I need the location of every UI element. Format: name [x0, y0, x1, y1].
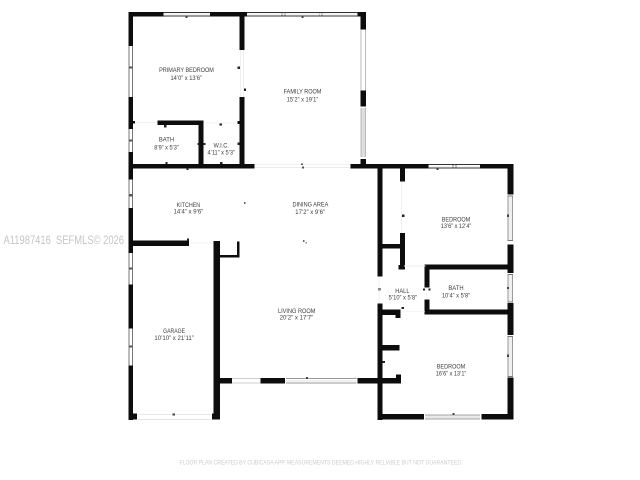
svg-text:20’2” x 17’7”: 20’2” x 17’7”: [280, 315, 314, 322]
svg-text:8’9” x 5’3”: 8’9” x 5’3”: [154, 144, 179, 151]
svg-text:14’0” x 13’6”: 14’0” x 13’6”: [170, 75, 202, 82]
svg-text:16’6” x 13’1”: 16’6” x 13’1”: [436, 371, 467, 378]
svg-text:FLOOR PLAN CREATED BY CUBICASA: FLOOR PLAN CREATED BY CUBICASA APP. MEAS…: [180, 459, 463, 466]
svg-text:BATH: BATH: [159, 137, 175, 144]
svg-text:BATH: BATH: [448, 285, 464, 292]
svg-text:DINING AREA: DINING AREA: [292, 201, 329, 208]
svg-text:10’10” x 21’11”: 10’10” x 21’11”: [154, 335, 193, 342]
svg-text:BEDROOM: BEDROOM: [437, 364, 466, 371]
svg-text:13’6” x 12’4”: 13’6” x 12’4”: [441, 223, 472, 230]
svg-text:4’11” x 5’3”: 4’11” x 5’3”: [207, 150, 235, 157]
svg-text:W.I.C.: W.I.C.: [213, 143, 229, 150]
svg-text:PRIMARY BEDROOM: PRIMARY BEDROOM: [159, 67, 214, 74]
svg-text:GARAGE: GARAGE: [163, 328, 185, 335]
svg-text:15’2” x 19’1”: 15’2” x 19’1”: [287, 96, 319, 103]
svg-text:10’4” x 5’8”: 10’4” x 5’8”: [442, 292, 470, 299]
svg-text:14’4” x 9’6”: 14’4” x 9’6”: [174, 209, 204, 216]
svg-text:17’2” x 9’6”: 17’2” x 9’6”: [295, 209, 325, 216]
svg-text:5’10” x 5’8”: 5’10” x 5’8”: [389, 295, 418, 302]
svg-text:FAMILY ROOM: FAMILY ROOM: [284, 89, 322, 96]
svg-text:A11987416 SEFMLS© 2026: A11987416 SEFMLS© 2026: [4, 234, 125, 247]
